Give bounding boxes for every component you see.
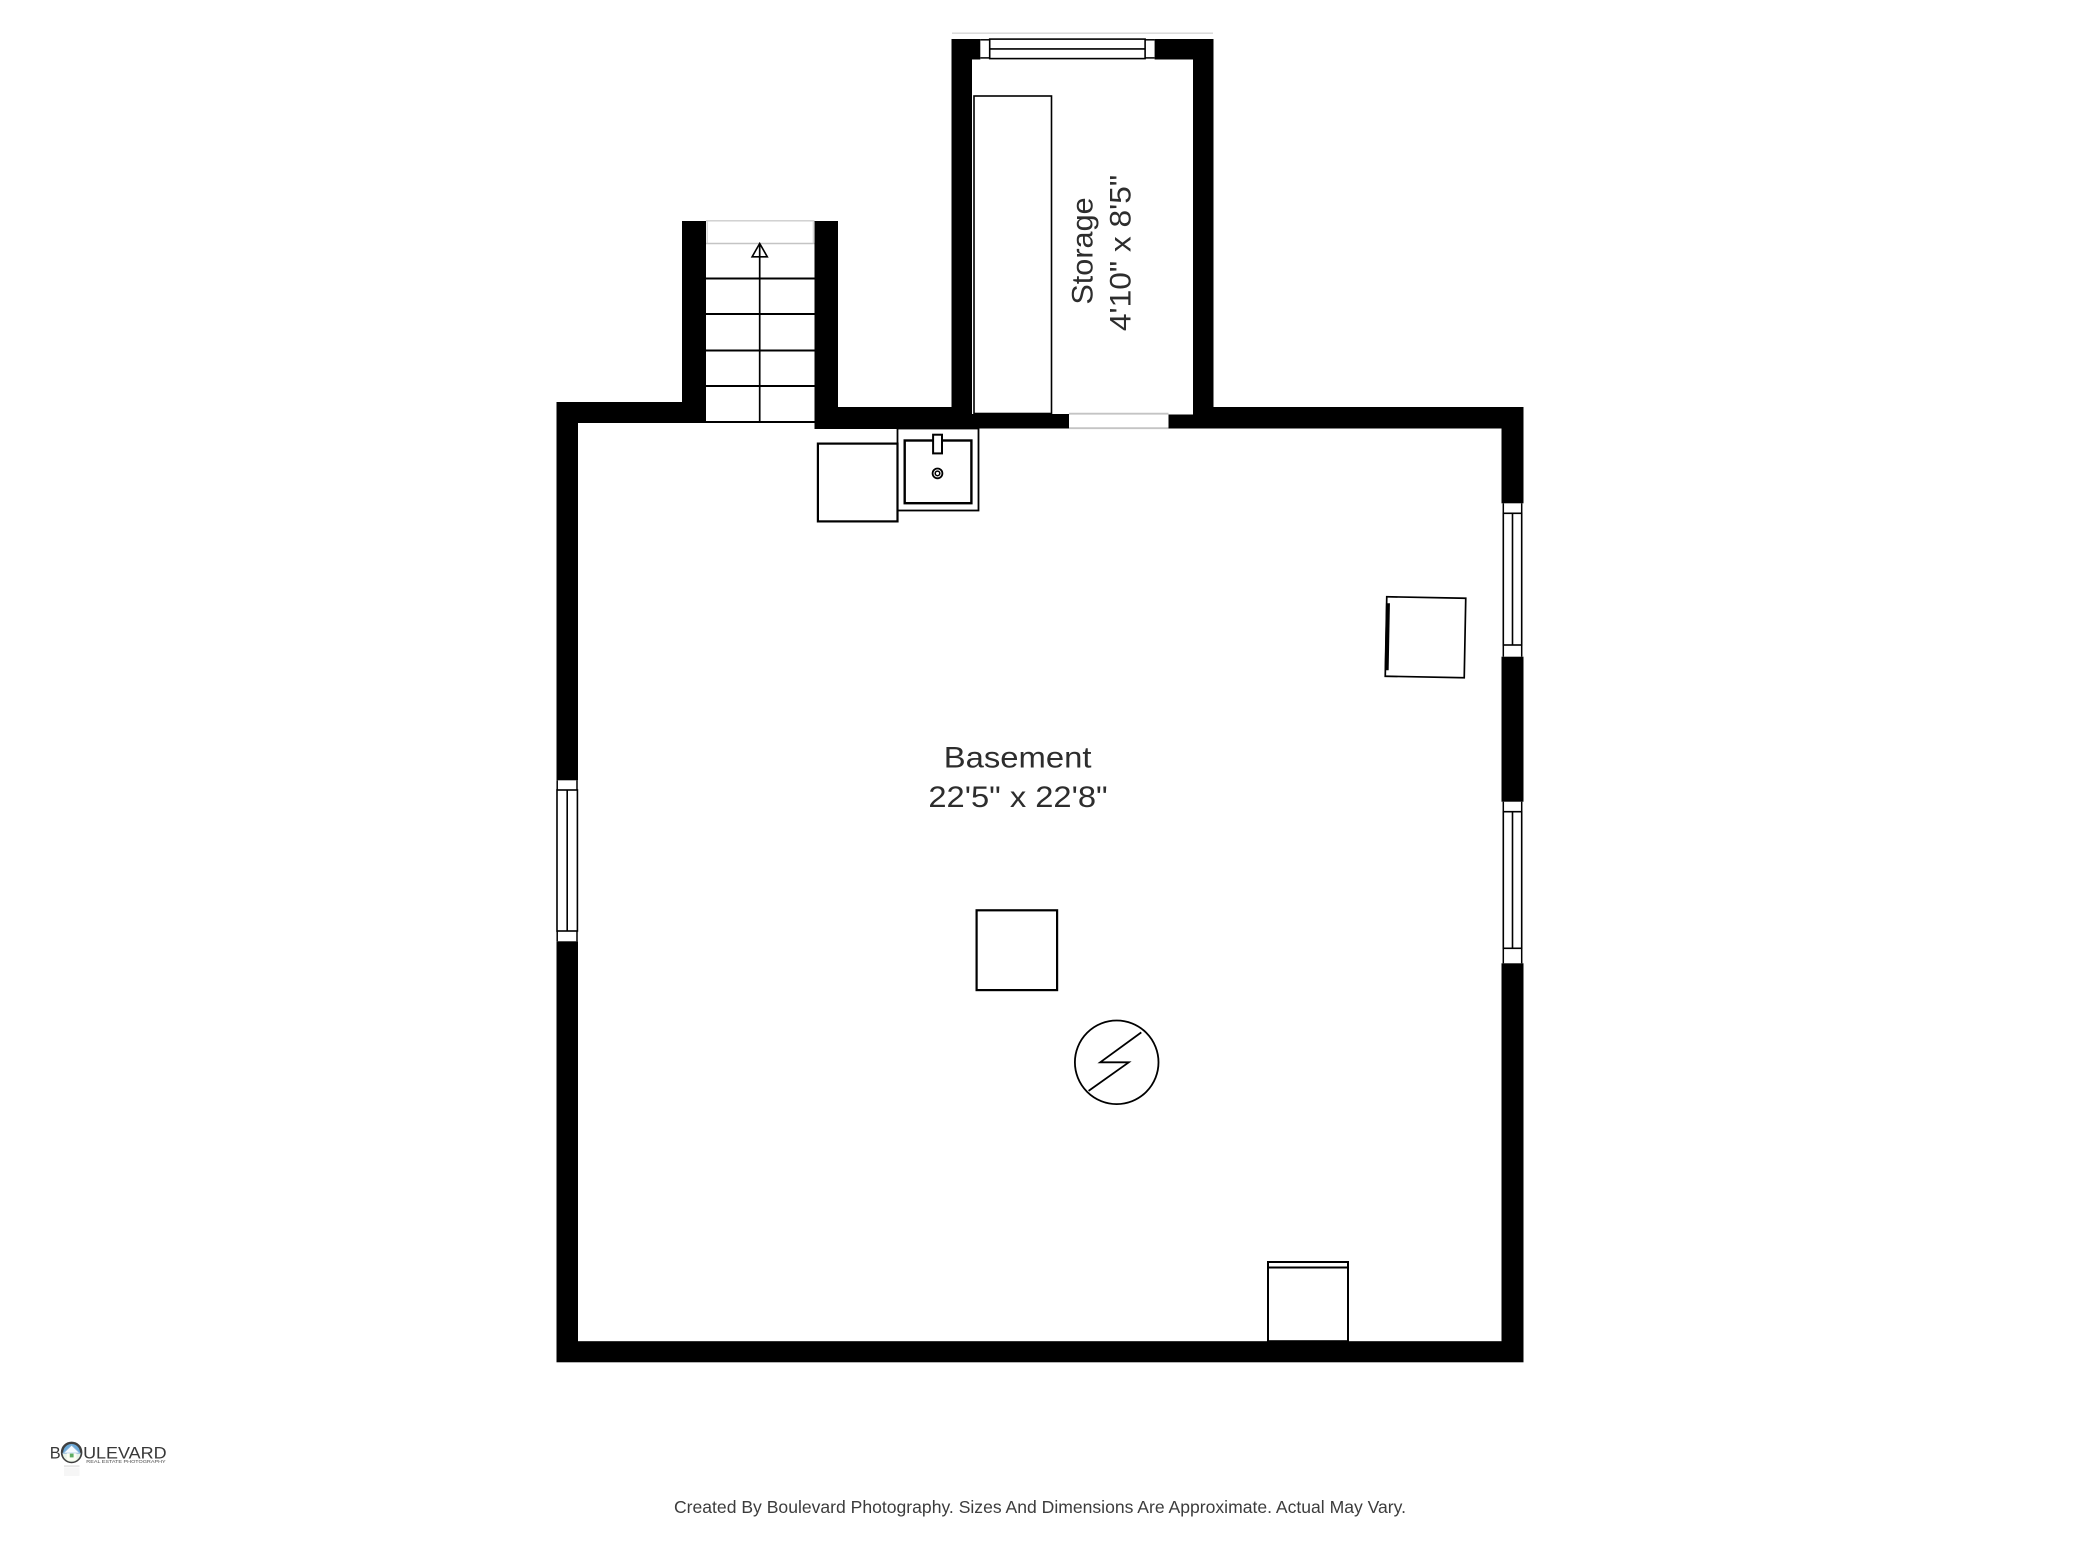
svg-text:REAL ESTATE PHOTOGRAPHY: REAL ESTATE PHOTOGRAPHY (86, 1459, 165, 1464)
svg-text:Basement: Basement (944, 742, 1092, 775)
svg-text:4'10" x 8'5": 4'10" x 8'5" (1105, 175, 1138, 331)
svg-text:B: B (50, 1444, 61, 1462)
svg-text:Storage: Storage (1066, 197, 1099, 304)
svg-text:22'5" x 22'8": 22'5" x 22'8" (928, 781, 1107, 814)
svg-text:Created By Boulevard Photograp: Created By Boulevard Photography. Sizes … (674, 1497, 1406, 1517)
